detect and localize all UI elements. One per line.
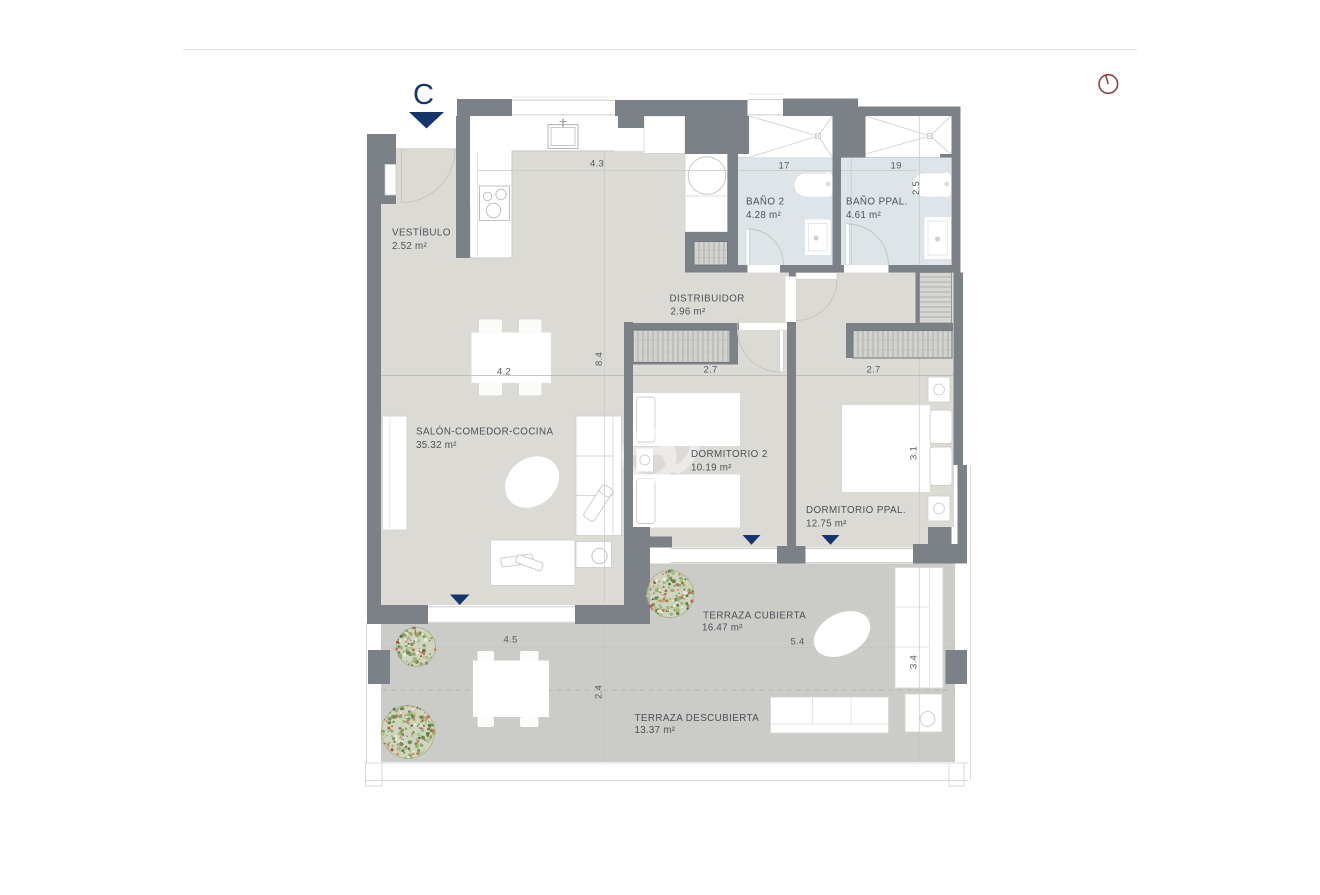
svg-text:5.4: 5.4 (791, 637, 805, 648)
svg-text:4.5: 4.5 (504, 635, 518, 646)
svg-text:12.75 m²: 12.75 m² (806, 519, 847, 530)
svg-text:16.47 m²: 16.47 m² (702, 623, 743, 634)
svg-text:4.2: 4.2 (497, 367, 511, 378)
svg-text:4.61 m²: 4.61 m² (846, 210, 881, 221)
svg-text:2.52 m²: 2.52 m² (392, 241, 427, 252)
svg-text:10.19 m²: 10.19 m² (691, 463, 732, 474)
svg-text:VESTÍBULO: VESTÍBULO (392, 228, 451, 239)
svg-text:2.5: 2.5 (911, 181, 922, 195)
svg-text:2.7: 2.7 (867, 365, 881, 376)
svg-text:BAÑO PPAL.: BAÑO PPAL. (846, 197, 908, 208)
svg-text:C: C (413, 79, 434, 111)
svg-text:13.37 m²: 13.37 m² (635, 725, 676, 736)
svg-text:17: 17 (779, 161, 790, 172)
svg-text:19: 19 (891, 161, 902, 172)
svg-text:TERRAZA CUBIERTA: TERRAZA CUBIERTA (703, 611, 806, 622)
svg-text:SALÓN-COMEDOR-COCINA: SALÓN-COMEDOR-COCINA (416, 427, 553, 438)
svg-text:8.4: 8.4 (594, 352, 605, 366)
svg-text:TERRAZA DESCUBIERTA: TERRAZA DESCUBIERTA (635, 713, 760, 724)
svg-text:3.4: 3.4 (909, 655, 920, 669)
svg-text:3.1: 3.1 (909, 446, 920, 460)
svg-text:4.28 m²: 4.28 m² (746, 210, 781, 221)
svg-text:2.4: 2.4 (594, 685, 605, 699)
svg-text:2.96 m²: 2.96 m² (671, 307, 706, 318)
svg-text:35.32 m²: 35.32 m² (416, 440, 457, 451)
svg-text:BAÑO 2: BAÑO 2 (746, 197, 784, 208)
svg-text:DORMITORIO PPAL.: DORMITORIO PPAL. (806, 505, 906, 516)
svg-text:DISTRIBUIDOR: DISTRIBUIDOR (670, 294, 745, 305)
svg-text:DORMITORIO 2: DORMITORIO 2 (691, 449, 768, 460)
svg-text:4.3: 4.3 (590, 159, 604, 170)
svg-text:2.7: 2.7 (704, 365, 718, 376)
